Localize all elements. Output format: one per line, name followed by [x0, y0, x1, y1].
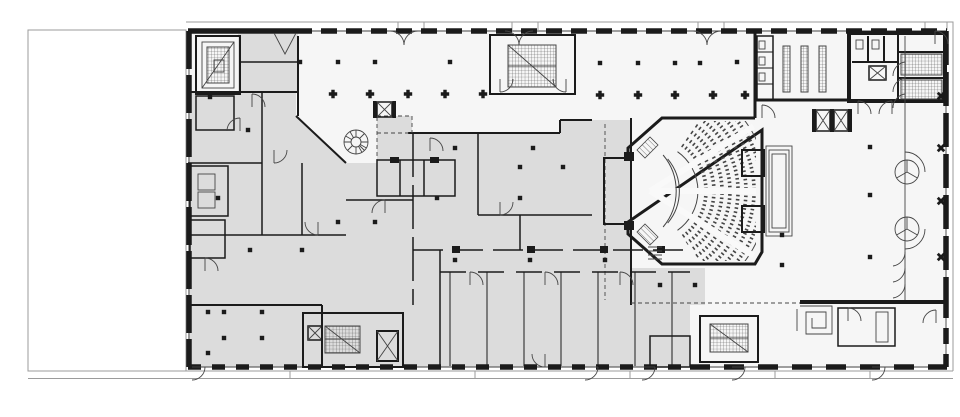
zone-offices-northwest — [238, 34, 298, 92]
floor-plan-drawing — [0, 0, 960, 417]
stair-flight-icon-ne2 — [901, 80, 942, 99]
floor-plan-page — [0, 0, 960, 417]
void-dashed-bay — [377, 116, 412, 133]
locker-bars — [783, 46, 826, 92]
stair-flight-icon-ne1 — [901, 54, 942, 75]
sidewalk-joints-bottom — [290, 371, 870, 379]
vacant-lot-west — [28, 30, 186, 371]
zone-offices-center — [346, 120, 631, 305]
